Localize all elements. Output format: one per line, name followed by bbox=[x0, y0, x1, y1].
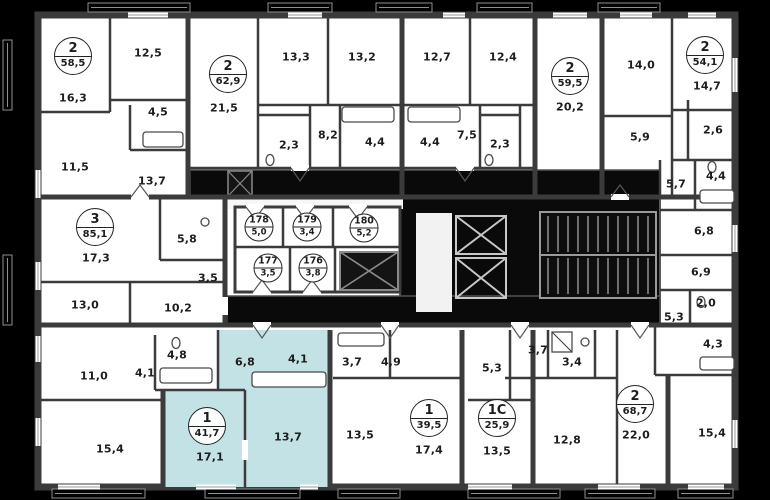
room-area-label: 6,8 bbox=[235, 357, 255, 368]
room-area-label: 16,3 bbox=[59, 93, 87, 104]
room-area-label: 4,4 bbox=[365, 137, 385, 148]
apartment-badge-area: 62,9 bbox=[210, 75, 246, 88]
room-area-label: 4,4 bbox=[420, 137, 440, 148]
room-area-label: 15,4 bbox=[96, 444, 124, 455]
apartment-badge-area: 41,7 bbox=[189, 427, 225, 440]
room-area-label: 13,7 bbox=[138, 176, 166, 187]
room-area-label: 22,0 bbox=[622, 430, 650, 441]
room-area-label: 13,7 bbox=[274, 432, 302, 443]
room-area-label: 4,8 bbox=[167, 350, 187, 361]
apartment-badge[interactable]: 259,5 bbox=[551, 57, 589, 95]
room-area-label: 12,7 bbox=[423, 52, 451, 63]
room-area-label: 3,7 bbox=[342, 357, 362, 368]
room-area-label: 4,1 bbox=[288, 354, 308, 365]
apartment-badge-area: 68,7 bbox=[617, 405, 653, 418]
room-area-label: 12,5 bbox=[134, 48, 162, 59]
room-area-label: 21,5 bbox=[210, 103, 238, 114]
apartment-badge-area: 58,5 bbox=[55, 57, 91, 70]
apartment-badge-number: 2 bbox=[552, 62, 588, 78]
room-area-label: 13,2 bbox=[348, 52, 376, 63]
storeroom-badge-number: 177 bbox=[255, 257, 282, 268]
room-area-label: 12,8 bbox=[553, 435, 581, 446]
storeroom-badge-number: 180 bbox=[351, 217, 378, 228]
room-area-label: 2,3 bbox=[279, 140, 299, 151]
room-area-label: 17,4 bbox=[415, 445, 443, 456]
room-area-label: 14,7 bbox=[693, 81, 721, 92]
room-area-label: 2,0 bbox=[696, 298, 716, 309]
storeroom-badge[interactable]: 1805,2 bbox=[350, 214, 379, 243]
room-area-label: 13,5 bbox=[346, 430, 374, 441]
apartment-badge[interactable]: 1C25,9 bbox=[478, 399, 516, 437]
storeroom-badge-area: 5,2 bbox=[351, 228, 378, 239]
room-area-label: 2,3 bbox=[490, 139, 510, 150]
storeroom-badge-area: 3,5 bbox=[255, 268, 282, 279]
room-area-label: 6,9 bbox=[691, 267, 711, 278]
floor-plan: 16,312,54,511,513,721,513,313,22,38,24,4… bbox=[0, 0, 770, 500]
apartment-badge[interactable]: 139,5 bbox=[410, 399, 448, 437]
room-area-label: 5,8 bbox=[177, 234, 197, 245]
apartment-badge[interactable]: 141,7 bbox=[188, 407, 226, 445]
room-area-label: 5,3 bbox=[664, 312, 684, 323]
apartment-badge-number: 2 bbox=[210, 60, 246, 76]
room-area-label: 4,5 bbox=[148, 107, 168, 118]
room-area-label: 12,4 bbox=[489, 52, 517, 63]
room-area-label: 15,4 bbox=[698, 428, 726, 439]
room-area-label: 11,5 bbox=[61, 162, 89, 173]
apartment-badge-area: 59,5 bbox=[552, 77, 588, 90]
room-area-label: 13,5 bbox=[483, 446, 511, 457]
storeroom-badge-number: 178 bbox=[246, 216, 273, 227]
room-area-label: 14,0 bbox=[627, 60, 655, 71]
room-area-label: 11,0 bbox=[80, 371, 108, 382]
apartment-badge-area: 39,5 bbox=[411, 419, 447, 432]
room-area-label: 3,5 bbox=[198, 273, 218, 284]
apartment-badge[interactable]: 254,1 bbox=[686, 36, 724, 74]
room-area-label: 7,5 bbox=[457, 130, 477, 141]
storeroom-badge-area: 3,4 bbox=[294, 227, 321, 238]
apartment-badge-number: 1 bbox=[411, 404, 447, 420]
room-area-label: 6,8 bbox=[694, 226, 714, 237]
storeroom-badge-number: 176 bbox=[300, 257, 327, 268]
apartment-badge[interactable]: 258,5 bbox=[54, 37, 92, 75]
room-area-label: 4,4 bbox=[706, 171, 726, 182]
room-area-label: 5,3 bbox=[482, 363, 502, 374]
apartment-badge-area: 54,1 bbox=[687, 56, 723, 69]
room-area-label: 4,1 bbox=[135, 368, 155, 379]
apartment-badge[interactable]: 262,9 bbox=[209, 55, 247, 93]
apartment-badge-number: 2 bbox=[617, 390, 653, 406]
apartment-badge-number: 2 bbox=[55, 42, 91, 58]
room-area-label: 5,7 bbox=[666, 179, 686, 190]
room-area-label: 8,2 bbox=[318, 130, 338, 141]
room-area-label: 4,3 bbox=[703, 339, 723, 350]
storeroom-badge[interactable]: 1793,4 bbox=[293, 213, 322, 242]
room-area-label: 3,7 bbox=[528, 345, 548, 356]
apartment-badge-area: 25,9 bbox=[479, 419, 515, 432]
room-area-label: 10,2 bbox=[164, 303, 192, 314]
apartment-badge-number: 3 bbox=[77, 213, 113, 229]
storeroom-badge-area: 5,0 bbox=[246, 227, 273, 238]
storeroom-badge[interactable]: 1773,5 bbox=[254, 254, 283, 283]
room-area-label: 4,9 bbox=[381, 357, 401, 368]
room-area-label: 3,4 bbox=[562, 357, 582, 368]
room-area-label: 17,3 bbox=[82, 253, 110, 264]
apartment-badge-number: 1C bbox=[479, 404, 515, 420]
storeroom-badge-number: 179 bbox=[294, 216, 321, 227]
apartment-badge[interactable]: 268,7 bbox=[616, 385, 654, 423]
room-area-label: 2,6 bbox=[703, 125, 723, 136]
room-area-label: 5,9 bbox=[630, 132, 650, 143]
storeroom-badge-area: 3,8 bbox=[300, 268, 327, 279]
room-area-label: 13,3 bbox=[282, 52, 310, 63]
room-area-label: 17,1 bbox=[196, 452, 224, 463]
apartment-badge-area: 85,1 bbox=[77, 228, 113, 241]
apartment-badge[interactable]: 385,1 bbox=[76, 208, 114, 246]
apartment-badge-number: 1 bbox=[189, 412, 225, 428]
room-area-label: 13,0 bbox=[71, 300, 99, 311]
storeroom-badge[interactable]: 1785,0 bbox=[245, 213, 274, 242]
apartment-badge-number: 2 bbox=[687, 41, 723, 57]
labels-layer: 16,312,54,511,513,721,513,313,22,38,24,4… bbox=[0, 0, 770, 500]
storeroom-badge[interactable]: 1763,8 bbox=[299, 254, 328, 283]
room-area-label: 20,2 bbox=[556, 102, 584, 113]
